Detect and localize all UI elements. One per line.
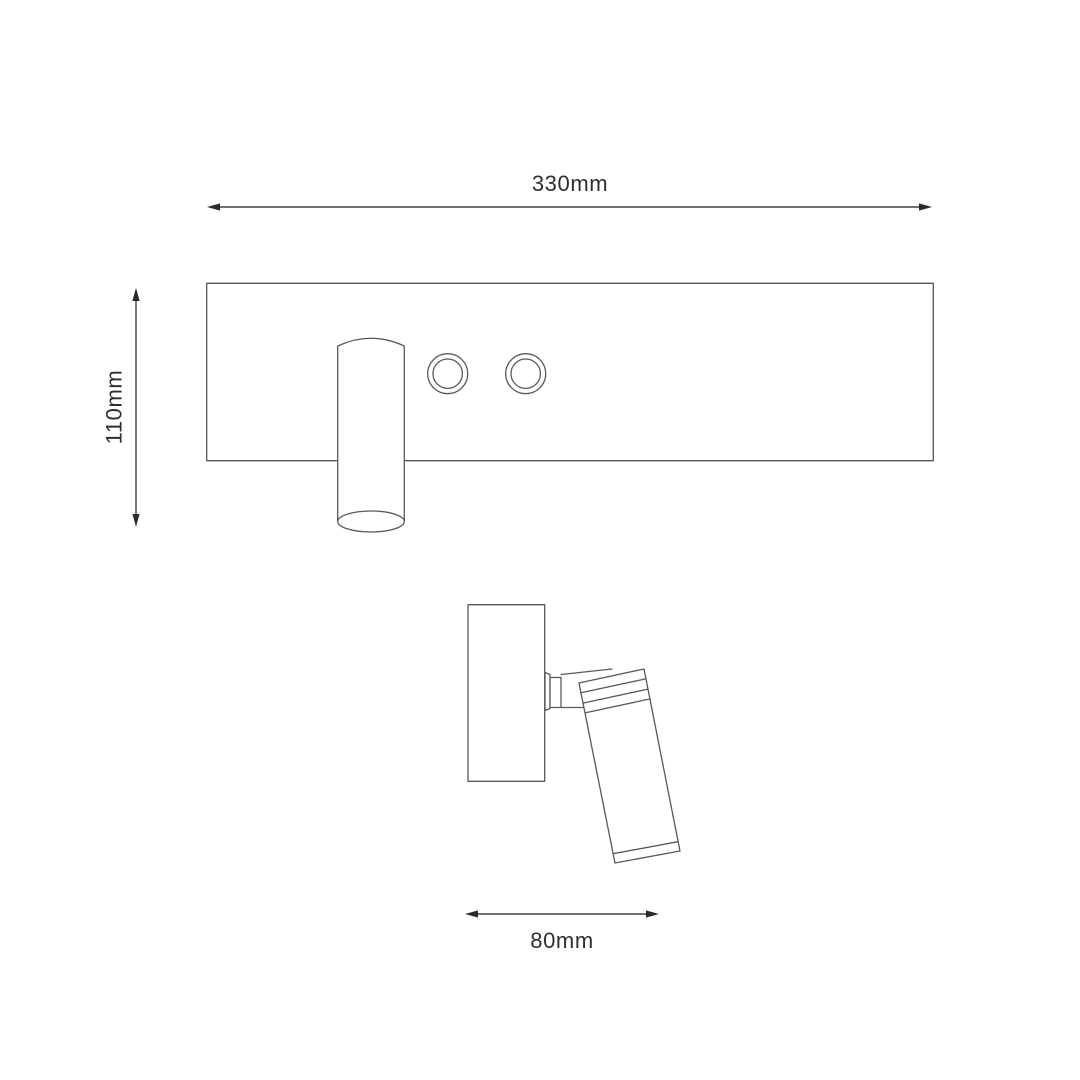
mount-flange [545,673,550,711]
width-dimension: 330mm [207,171,932,211]
front-view [207,283,934,532]
faceplate-outline [207,283,934,460]
depth-dim-label: 80mm [530,928,594,953]
height-dim-arrowhead-top-icon [132,288,139,301]
width-dim-arrowhead-right-icon [919,203,932,210]
mount-knuckle [550,678,561,708]
height-dim-arrowhead-bottom-icon [132,514,139,527]
spotlight-head-body [579,669,680,863]
height-dim-label: 110mm [102,370,127,445]
reading-light-barrel [338,338,405,526]
backplate-side-outline [468,605,545,782]
depth-dim-arrowhead-right-icon [646,910,659,917]
height-dimension: 110mm [102,288,140,527]
depth-dim-arrowhead-left-icon [465,910,478,917]
side-view [468,605,680,863]
arm-top-line [561,669,612,675]
technical-drawing-canvas: 330mm 110mm [0,0,1080,1080]
barrel-bottom-ellipse [338,511,405,532]
width-dim-label: 330mm [532,171,608,196]
width-dim-arrowhead-left-icon [207,203,220,210]
depth-dimension: 80mm [465,910,659,953]
wall-light-dimension-diagram: 330mm 110mm [0,0,1080,1080]
